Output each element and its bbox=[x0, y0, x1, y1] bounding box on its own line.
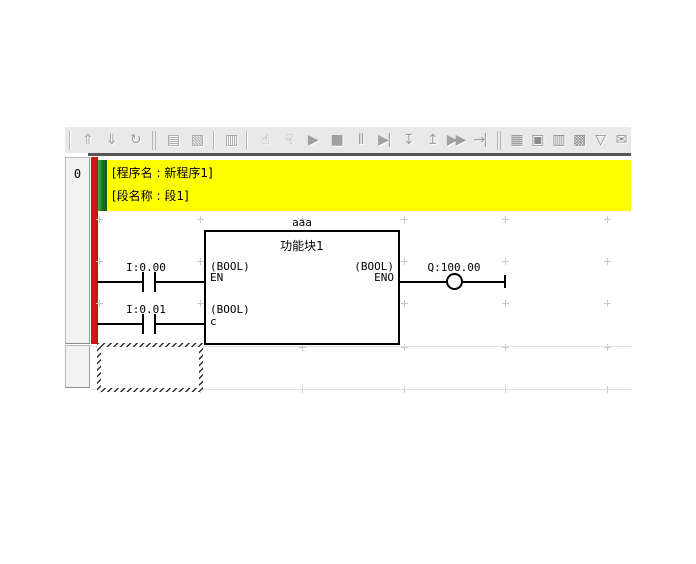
contact-symbol bbox=[142, 272, 144, 292]
selection-cursor-interior bbox=[101, 347, 199, 388]
function-block[interactable]: 功能块1 (BOOL) EN (BOOL) ENO (BOOL) c bbox=[204, 230, 400, 345]
grid-cross bbox=[604, 300, 611, 307]
wire bbox=[97, 323, 142, 325]
grid-cross bbox=[502, 258, 509, 265]
contact-label: I:0.01 bbox=[106, 303, 186, 316]
grid-cross bbox=[502, 300, 509, 307]
grid-cross bbox=[502, 216, 509, 223]
wire bbox=[463, 281, 505, 283]
contact-symbol bbox=[142, 314, 144, 334]
contact-label: I:0.00 bbox=[106, 261, 186, 274]
ladder-canvas: I:0.00 I:0.01 aaa 功能块1 (BOOL) EN (BOOL) … bbox=[0, 0, 696, 564]
wire bbox=[97, 281, 142, 283]
coil-symbol bbox=[446, 273, 463, 290]
grid-cross bbox=[604, 258, 611, 265]
function-block-title: 功能块1 bbox=[206, 237, 398, 254]
grid-cross bbox=[604, 216, 611, 223]
grid-cross bbox=[197, 258, 204, 265]
wire-end-terminal bbox=[504, 275, 506, 288]
wire bbox=[156, 281, 204, 283]
grid-cross bbox=[197, 216, 204, 223]
grid-cross bbox=[96, 216, 103, 223]
grid-cross bbox=[96, 258, 103, 265]
grid-cross bbox=[96, 300, 103, 307]
fb-eno-label: ENO bbox=[374, 272, 394, 283]
grid-cross bbox=[197, 300, 204, 307]
function-block-instance-label: aaa bbox=[204, 216, 400, 229]
selection-cursor[interactable] bbox=[97, 343, 203, 392]
grid-cross bbox=[401, 216, 408, 223]
fb-en-label: EN bbox=[210, 272, 223, 283]
fb-c-label: c bbox=[210, 316, 217, 327]
grid-cross bbox=[401, 258, 408, 265]
wire bbox=[156, 323, 204, 325]
wire bbox=[400, 281, 446, 283]
grid-cross bbox=[401, 300, 408, 307]
fb-c-type-label: (BOOL) bbox=[210, 304, 250, 315]
